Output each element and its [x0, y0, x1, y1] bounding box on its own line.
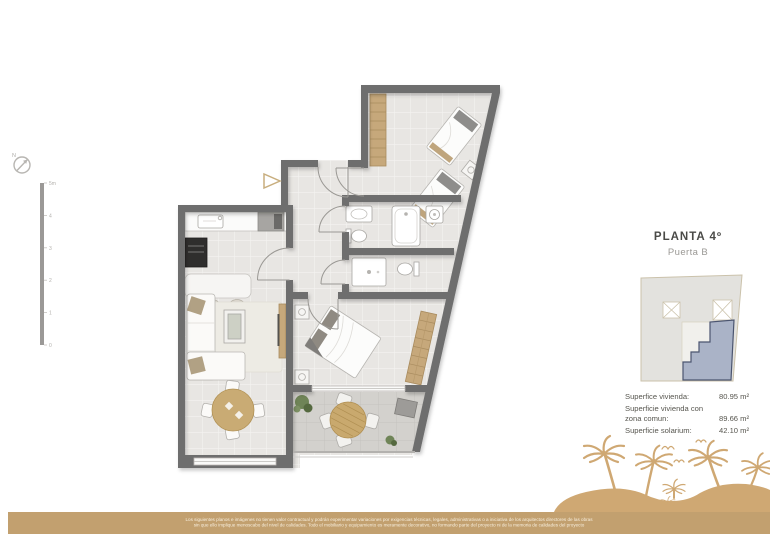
scale-bar: 5m 4 3 2 1 0	[40, 181, 56, 349]
kitchen-sink	[198, 215, 223, 228]
palm-beach-decoration	[550, 432, 770, 512]
kitchen-oven-column	[185, 238, 207, 267]
wall	[361, 85, 368, 168]
scale-bar-line	[40, 183, 44, 345]
washing-machine	[426, 206, 443, 223]
nightstand	[295, 305, 309, 319]
surface-areas: Superfice vivienda: 80.95 m² Superficie …	[625, 392, 749, 437]
dining-table	[212, 389, 254, 431]
wall	[293, 292, 308, 299]
area-label: Superfice vivienda:	[625, 392, 709, 403]
wall	[342, 284, 349, 292]
disclaimer-text: Los siguientes planos e imágenes no tien…	[8, 517, 770, 528]
wall	[348, 160, 368, 167]
wall	[405, 385, 427, 392]
wall	[178, 205, 288, 212]
wardrobe	[370, 94, 386, 166]
sand-mound	[554, 484, 770, 512]
washbasin	[346, 206, 372, 222]
north-label: N	[12, 153, 16, 159]
scale-label-2: 2	[49, 278, 52, 284]
entrance-marker-triangle	[264, 174, 280, 188]
bathtub	[392, 206, 420, 246]
scale-label-5m: 5m	[49, 181, 56, 187]
wall	[286, 280, 293, 458]
area-value: 89.66 m²	[709, 414, 749, 425]
scale-label-3: 3	[49, 246, 52, 252]
footer-bar: Los siguientes planos e imágenes no tien…	[8, 512, 770, 534]
page: N 5m 4 3 2 1 0	[0, 0, 770, 535]
area-row-zona-comun: Superficie vivienda conzona comun: 89.66…	[625, 404, 749, 425]
building-shaft	[663, 302, 680, 318]
disclaimer-line-2: sin que ello implique menoscabo del nive…	[8, 523, 770, 529]
scale-label-1: 1	[49, 311, 52, 317]
wall	[342, 232, 349, 260]
plan-title: PLANTA 4º	[600, 231, 770, 243]
tv	[278, 314, 280, 346]
scale-bar-and-compass: N 5m 4 3 2 1 0	[0, 145, 70, 360]
scale-label-0: 0	[49, 343, 52, 349]
tv-console	[278, 304, 287, 358]
area-row-vivienda: Superfice vivienda: 80.95 m²	[625, 392, 749, 403]
palm-tree	[636, 446, 672, 496]
building-shaft	[713, 300, 732, 320]
toilet	[346, 229, 367, 243]
wall	[361, 85, 500, 93]
area-value: 80.95 m²	[709, 392, 749, 403]
scale-label-4: 4	[49, 213, 52, 219]
shower	[352, 258, 386, 286]
toilet	[398, 262, 420, 276]
north-compass-icon: N	[12, 153, 30, 173]
key-plan	[635, 270, 750, 385]
wall	[342, 248, 454, 255]
nightstand	[295, 370, 309, 384]
wall	[293, 385, 312, 392]
wall	[281, 160, 288, 212]
wall	[178, 205, 185, 468]
wall	[286, 205, 293, 248]
palm-tree	[689, 441, 727, 490]
wall	[342, 202, 349, 206]
palm-tree	[584, 436, 624, 494]
floor-plan-drawing	[90, 80, 510, 480]
wall	[338, 292, 454, 299]
plan-subtitle: Puerta B	[600, 247, 770, 258]
coffee-table	[224, 310, 245, 343]
area-label: Superficie vivienda conzona comun:	[625, 404, 709, 425]
palm-tree-small	[663, 479, 685, 498]
